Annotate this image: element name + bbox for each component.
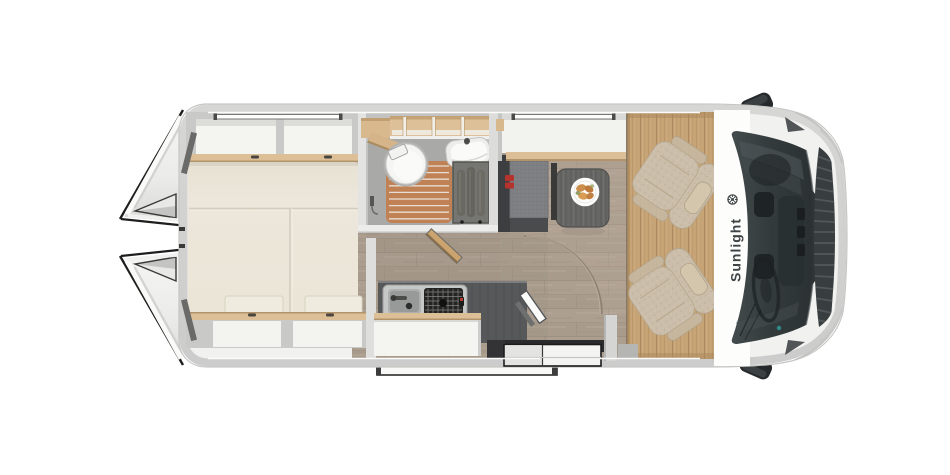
svg-text:Sunlight: Sunlight <box>728 218 744 282</box>
